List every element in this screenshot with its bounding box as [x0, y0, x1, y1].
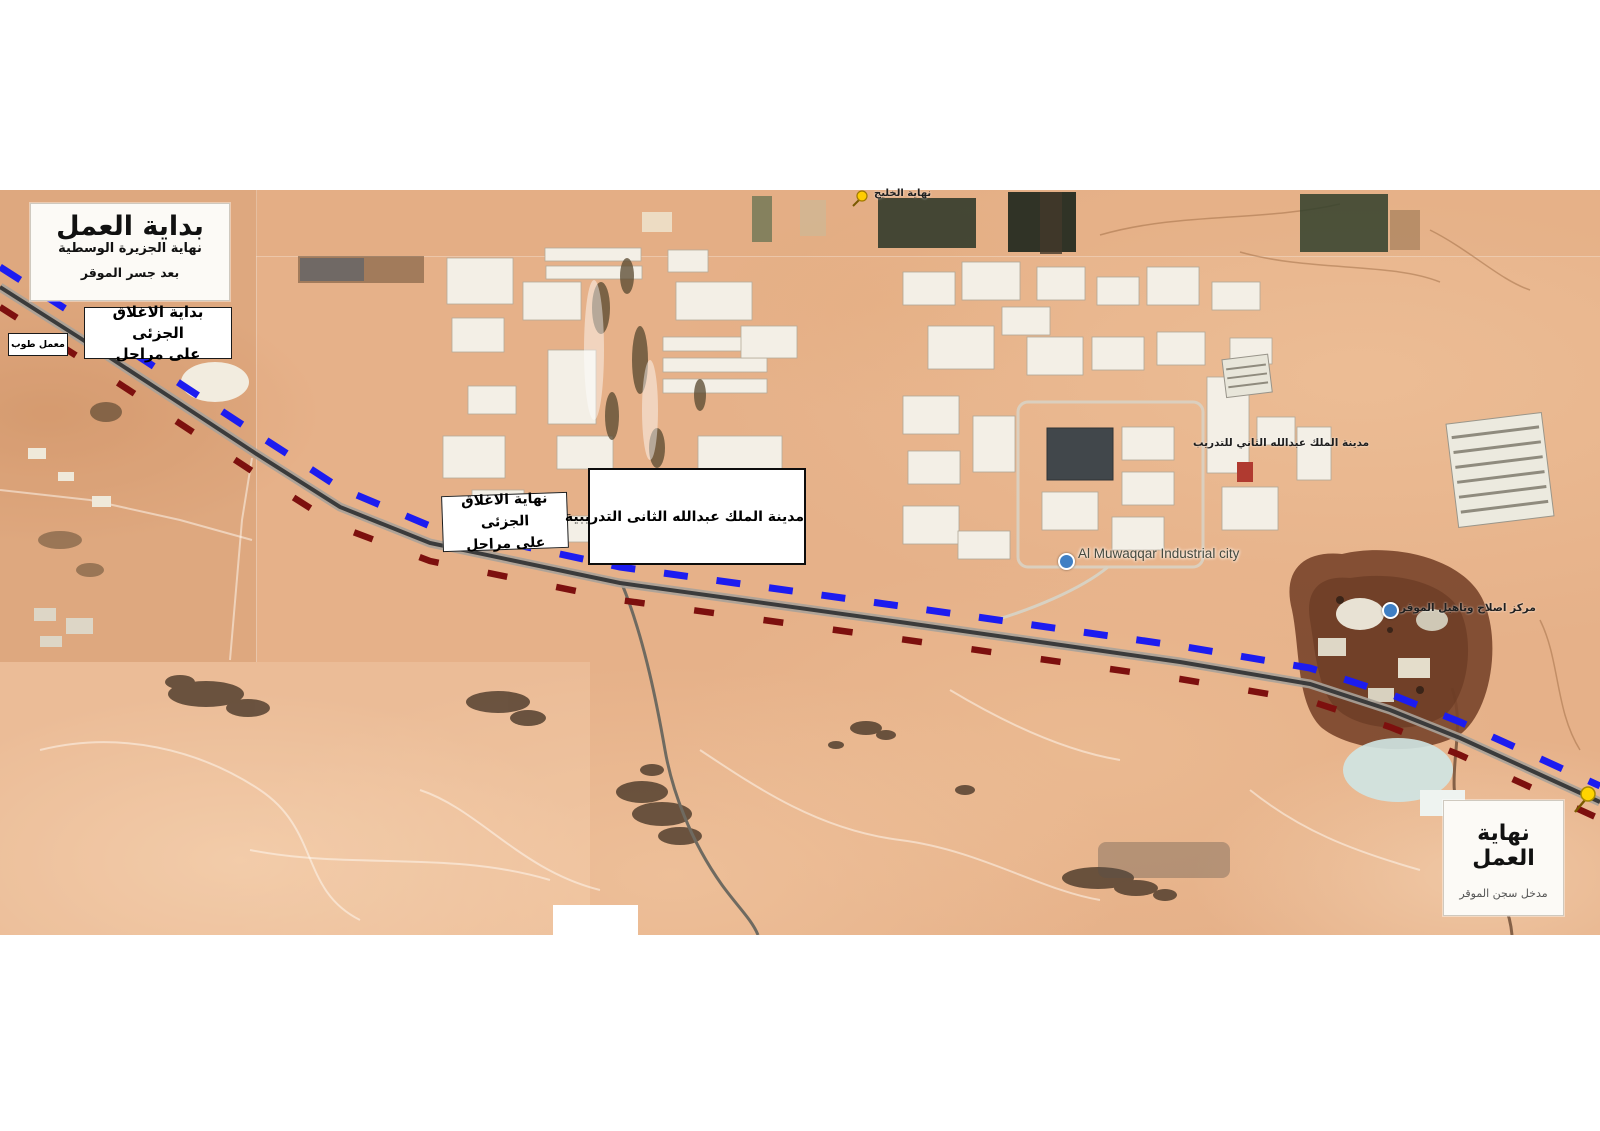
start-of-work-title: بداية العمل: [31, 212, 229, 242]
end-of-work-title: نهاية العمل: [1444, 821, 1563, 871]
branch-road-south: [622, 584, 758, 935]
closure-end-line1: نهاية الاغلاق الجزئى: [442, 487, 567, 535]
dark-band: [1098, 842, 1230, 878]
start-of-work-line2: نهاية الجزيرة الوسطية: [31, 242, 229, 256]
ring-road: [1018, 402, 1203, 567]
red-roof-building: [1237, 462, 1253, 482]
solar-array-large: [1446, 413, 1554, 528]
left-patch-features: [28, 362, 249, 647]
solar-array-small: [1222, 354, 1272, 397]
place-marker-icon-prison: [1382, 602, 1399, 619]
training-city-box: مدينة الملك عبدالله الثانى التدريبية: [588, 468, 806, 565]
map-label-training-city: مدينة الملك عبدالله الثاني للتدريب: [1193, 437, 1369, 449]
end-of-work-subtitle: مدخل سجن الموقر: [1444, 887, 1563, 900]
dark-building: [1047, 428, 1113, 480]
vegetation-blobs: [165, 675, 1177, 901]
start-of-work-line3: بعد جسر الموقر: [31, 265, 229, 280]
access-road: [992, 567, 1108, 621]
pushpin-icon-top: [853, 191, 867, 206]
closure-end-line2: على مراحل: [443, 531, 568, 557]
industrial-cluster-east: [903, 262, 1331, 559]
closure-start-line1: بداية الاغلاق الجزئى: [85, 302, 231, 344]
scan-seam: [553, 905, 638, 935]
closure-start-line2: على مراحل: [85, 344, 231, 365]
end-of-work-box: نهاية العمل مدخل سجن الموقر: [1443, 800, 1564, 916]
light-streaks: [584, 280, 658, 460]
road-closure-plan-figure: بداية العمل نهاية الجزيرة الوسطية بعد جس…: [0, 0, 1600, 1131]
partial-closure-start-box: بداية الاغلاق الجزئى على مراحل: [84, 307, 232, 359]
place-marker-icon-industrial: [1058, 553, 1075, 570]
map-label-gulf-end: نهاية الخليج: [874, 188, 931, 199]
map-label-prison: مركز اصلاح وتاهيل الموقر: [1400, 602, 1536, 614]
map-label-industrial-city: Al Muwaqqar Industrial city: [1078, 546, 1239, 561]
partial-closure-end-box: نهاية الاغلاق الجزئى على مراحل: [441, 492, 569, 552]
brick-factory-label: معمل طوب: [8, 333, 68, 356]
start-of-work-box: بداية العمل نهاية الجزيرة الوسطية بعد جس…: [30, 203, 230, 301]
